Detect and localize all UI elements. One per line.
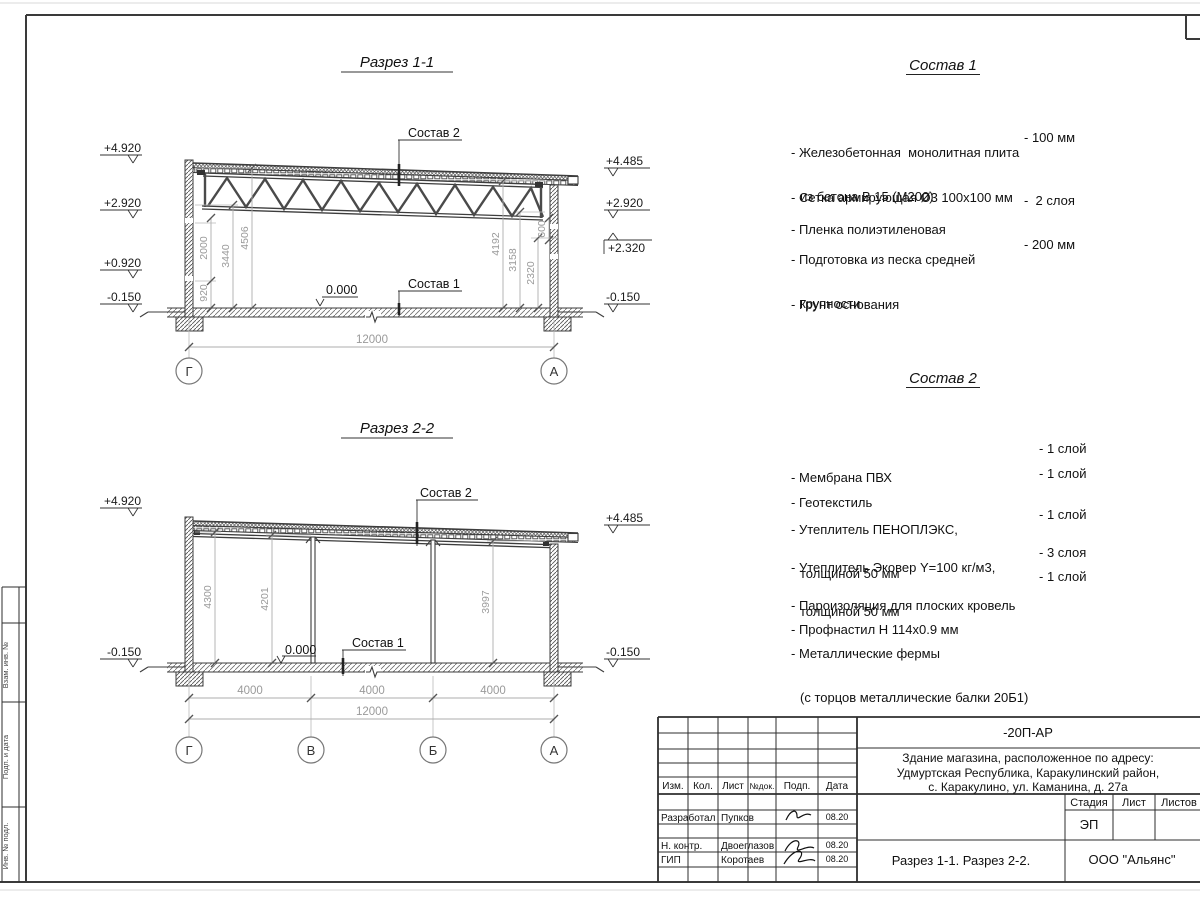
dimension-label: 12000: [356, 334, 388, 346]
dimension-label: 3158: [507, 248, 519, 272]
elevation-label: +2.920: [606, 196, 643, 210]
stage-header-cell: Стадия: [1070, 797, 1108, 809]
stage-value: ЭП: [1080, 817, 1099, 832]
elevation-label: -0.150: [606, 290, 640, 304]
rev-header-cell: Лист: [722, 781, 744, 792]
sostav1-title: Состав 1: [785, 57, 1101, 74]
side-stamp: Взам. инв. № Подп. и дата Инв. № подл.: [1, 587, 26, 882]
dimension-label: 12000: [356, 706, 388, 718]
material-quantity: - 1 слой: [1039, 570, 1087, 585]
material-quantity: - 2 слоя: [1024, 194, 1075, 209]
signature-date: 08.20: [826, 854, 849, 864]
material-quantity: - 1 слой: [1039, 442, 1087, 457]
elevation-label: +4.920: [104, 494, 141, 508]
material-name: - Железобетонная монолитная плита: [791, 146, 1101, 161]
material-item: - Металлические фермы (с торцов металлич…: [791, 618, 1101, 734]
sostav2-title: Состав 2: [785, 370, 1101, 387]
object-address-line: Удмуртская Республика, Каракулинский рай…: [897, 766, 1160, 780]
sostav2-title-text: Состав 2: [906, 370, 980, 388]
side-stamp-label: Взам. инв. №: [1, 642, 10, 688]
material-name: - Подготовка из песка средней: [791, 253, 1101, 268]
dimension-label: 4201: [259, 587, 271, 611]
sostav1-list: Состав 1 - Железобетонная монолитная пли…: [785, 55, 1101, 74]
dimension-label: 3997: [480, 590, 492, 614]
sostav1-callout: Состав 1: [352, 636, 404, 650]
rev-header-cell: №док.: [750, 781, 775, 791]
rev-header-cell: Подп.: [784, 781, 811, 792]
side-stamp-label: Инв. № подл.: [1, 823, 10, 870]
sostav1-callout: Состав 1: [408, 277, 460, 291]
callout-labels: Состав 2 Состав 1 0.000: [277, 486, 478, 676]
rev-header-cell: Дата: [826, 781, 849, 792]
signature-date: 08.20: [826, 812, 849, 822]
material-quantity: - 3 слоя: [1039, 546, 1086, 561]
axes-and-spans: 4000 4000 4000 12000 Г В Б А: [176, 676, 567, 763]
signature-role: ГИП: [661, 855, 681, 866]
dimension-label: 4000: [359, 685, 385, 697]
dimension-label: 4000: [480, 685, 506, 697]
section-2-2-drawing: Разрез 2-2: [100, 420, 650, 763]
stage-header-cell: Лист: [1122, 797, 1146, 809]
object-address-line: Здание магазина, расположенное по адресу…: [902, 751, 1153, 765]
dimension-label: 2000: [198, 236, 210, 260]
elevation-label: +2.320: [608, 241, 645, 255]
signature-name: Пупков: [721, 813, 754, 824]
signature-role: Н. контр.: [661, 841, 702, 852]
object-address-line: с. Каракулино, ул. Каманина, д. 27а: [928, 780, 1128, 794]
section-title: Разрез 1-1: [360, 54, 434, 71]
callout-labels: Состав 2 Состав 1 0.000: [316, 126, 462, 316]
signature-scribble: [785, 841, 814, 851]
material-quantity: - 200 мм: [1024, 238, 1075, 253]
elevation-label: +4.920: [104, 141, 141, 155]
axis-label: Г: [185, 743, 192, 758]
sostav2-list: Состав 2 - Мембрана ПВХ - 1 слой - Геоте…: [785, 368, 1101, 387]
material-name-line2: (с торцов металлические балки 20Б1): [791, 691, 1101, 706]
side-stamp-label: Подп. и дата: [1, 734, 10, 779]
dimension-label: 920: [198, 284, 210, 302]
axis-label: А: [550, 743, 559, 758]
signature-name: Двоеглазов: [721, 841, 774, 852]
drawing-sheet: Взам. инв. № Подп. и дата Инв. № подл. Р…: [0, 0, 1200, 900]
sostav2-callout: Состав 2: [408, 126, 460, 140]
stage-header-cell: Листов: [1161, 797, 1197, 809]
signature-name: Коротаев: [721, 855, 764, 866]
material-item: - Грунт основания: [791, 269, 1101, 342]
company-name: ООО "Альянс": [1089, 852, 1176, 867]
axes-and-span: 12000 Г А: [176, 320, 567, 384]
dimension-label: 600: [536, 220, 548, 238]
elevation-label: -0.150: [107, 645, 141, 659]
axis-label: Г: [185, 364, 192, 379]
sostav2-callout: Состав 2: [420, 486, 472, 500]
dimension-label: 2320: [525, 261, 537, 285]
dimension-label: 4506: [239, 226, 251, 250]
elevation-marks-right: +4.485 +2.920 +2.320 -0.150: [604, 154, 652, 312]
rev-header-cell: Кол.: [693, 781, 713, 792]
sheet-title: Разрез 1-1. Разрез 2-2.: [892, 853, 1030, 868]
rev-header-cell: Изм.: [662, 781, 683, 792]
zero-level-label: 0.000: [326, 283, 357, 297]
material-quantity: - 1 слой: [1039, 467, 1087, 482]
dimension-label: 4192: [490, 232, 502, 256]
elevation-label: -0.150: [606, 645, 640, 659]
elevation-label: +2.920: [104, 196, 141, 210]
elevation-label: -0.150: [107, 290, 141, 304]
elevation-label: +0.920: [104, 256, 141, 270]
title-block: -20П-АР Здание магазина, расположенное п…: [658, 717, 1200, 882]
signature-role: Разработал: [661, 812, 716, 824]
material-quantity: - 1 слой: [1039, 508, 1087, 523]
signature-scribble: [784, 851, 815, 864]
dimension-label: 3440: [220, 244, 232, 268]
material-quantity: - 100 мм: [1024, 131, 1075, 146]
elevation-marks-left: +4.920 +2.920 +0.920 -0.150: [100, 141, 142, 312]
signature-scribble: [786, 811, 811, 820]
section-1-1-drawing: Разрез 1-1: [100, 54, 652, 384]
dimension-label: 4000: [237, 685, 263, 697]
axis-label: Б: [429, 743, 438, 758]
sostav1-title-text: Состав 1: [906, 57, 980, 75]
material-name: - Грунт основания: [791, 298, 1101, 313]
zero-level-label: 0.000: [285, 643, 316, 657]
material-name: - Металлические фермы: [791, 647, 1101, 662]
signature-date: 08.20: [826, 840, 849, 850]
elevation-label: +4.485: [606, 154, 643, 168]
dimension-label: 4300: [202, 585, 214, 609]
section-title: Разрез 2-2: [360, 420, 435, 437]
axis-label: В: [307, 743, 316, 758]
axis-label: А: [550, 364, 559, 379]
elevation-label: +4.485: [606, 511, 643, 525]
